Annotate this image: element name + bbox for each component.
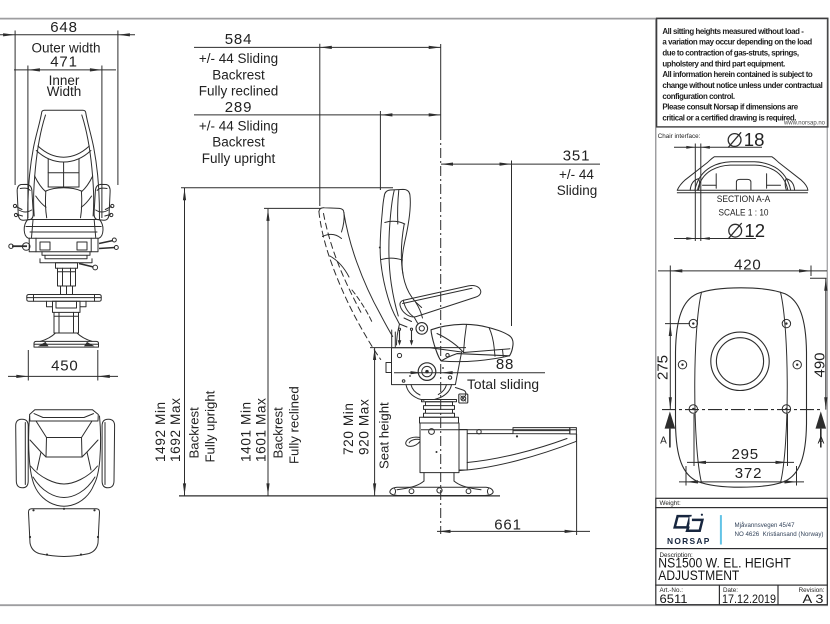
svg-text:295: 295 (731, 446, 758, 463)
svg-text:+/- 44: +/- 44 (559, 167, 594, 182)
svg-text:Total sliding: Total sliding (467, 377, 539, 392)
svg-text:661: 661 (494, 516, 521, 533)
svg-text:1401 Min: 1401 Min (239, 401, 254, 462)
svg-text:due to contraction of gas-stru: due to contraction of gas-struts, spring… (662, 49, 798, 58)
svg-text:configuration control.: configuration control. (662, 92, 735, 101)
svg-text:Backrest: Backrest (212, 67, 265, 82)
svg-text:490: 490 (811, 352, 828, 377)
svg-text:372: 372 (735, 465, 762, 482)
svg-text:584: 584 (225, 31, 252, 48)
svg-text:All sitting heights measured w: All sitting heights measured without loa… (662, 27, 804, 36)
svg-text:1692 Max: 1692 Max (168, 398, 183, 463)
svg-text:Fully reclined: Fully reclined (287, 386, 302, 464)
svg-text:www.norsap.no: www.norsap.no (783, 120, 826, 126)
svg-text:a variation may occur dependin: a variation may occur depending on the l… (662, 38, 812, 47)
svg-text:ADJUSTMENT: ADJUSTMENT (658, 568, 739, 583)
svg-text:Width: Width (47, 84, 82, 99)
svg-text:SCALE 1 : 10: SCALE 1 : 10 (719, 206, 769, 217)
svg-text:critical or a certified drawin: critical or a certified drawing is requi… (662, 113, 796, 122)
svg-text:+/- 44 Sliding: +/- 44 Sliding (199, 118, 278, 133)
svg-text:+/- 44 Sliding: +/- 44 Sliding (199, 51, 278, 66)
svg-text:Backrest: Backrest (187, 407, 202, 459)
svg-text:NO 4626 Kristiansand (Norway): NO 4626 Kristiansand (Norway) (735, 531, 824, 538)
svg-text:All information herein contain: All information herein contained is subj… (662, 70, 813, 79)
svg-text:Backrest: Backrest (212, 135, 265, 150)
svg-text:Fully upright: Fully upright (203, 390, 218, 462)
svg-text:Weight:: Weight: (660, 500, 681, 507)
svg-text:Backrest: Backrest (271, 407, 286, 459)
svg-text:Mjåvannsvegen 45/47: Mjåvannsvegen 45/47 (735, 521, 795, 529)
svg-text:A: A (818, 436, 825, 447)
svg-text:Seat height: Seat height (377, 402, 392, 469)
svg-text:275: 275 (655, 355, 672, 380)
svg-text:change without notice unless u: change without notice unless under contr… (662, 81, 822, 90)
svg-text:A 3: A 3 (803, 592, 824, 606)
svg-text:Fully upright: Fully upright (202, 151, 276, 166)
svg-text:upholstery and third part equi: upholstery and third part equipment. (662, 59, 785, 68)
svg-text:1492 Min: 1492 Min (153, 401, 168, 462)
svg-text:Fully reclined: Fully reclined (199, 84, 279, 99)
svg-text:648: 648 (50, 19, 77, 36)
svg-text:Sliding: Sliding (557, 183, 598, 198)
svg-text:Chair interface:: Chair interface: (658, 133, 701, 140)
svg-text:450: 450 (51, 358, 78, 375)
svg-text:A: A (660, 436, 667, 447)
svg-text:720 Min: 720 Min (341, 402, 356, 455)
svg-text:1601 Max: 1601 Max (254, 398, 269, 463)
svg-text:289: 289 (225, 99, 252, 116)
svg-text:6511: 6511 (660, 592, 688, 606)
svg-text:17.12.2019: 17.12.2019 (722, 592, 776, 606)
svg-text:471: 471 (50, 54, 77, 71)
svg-text:351: 351 (563, 147, 590, 164)
svg-text:NORSAP: NORSAP (667, 536, 711, 546)
svg-text:SECTION A-A: SECTION A-A (717, 193, 771, 204)
svg-text:920 Max: 920 Max (357, 399, 372, 455)
svg-text:Please consult Norsap if dimen: Please consult Norsap if dimensions are (662, 103, 798, 112)
